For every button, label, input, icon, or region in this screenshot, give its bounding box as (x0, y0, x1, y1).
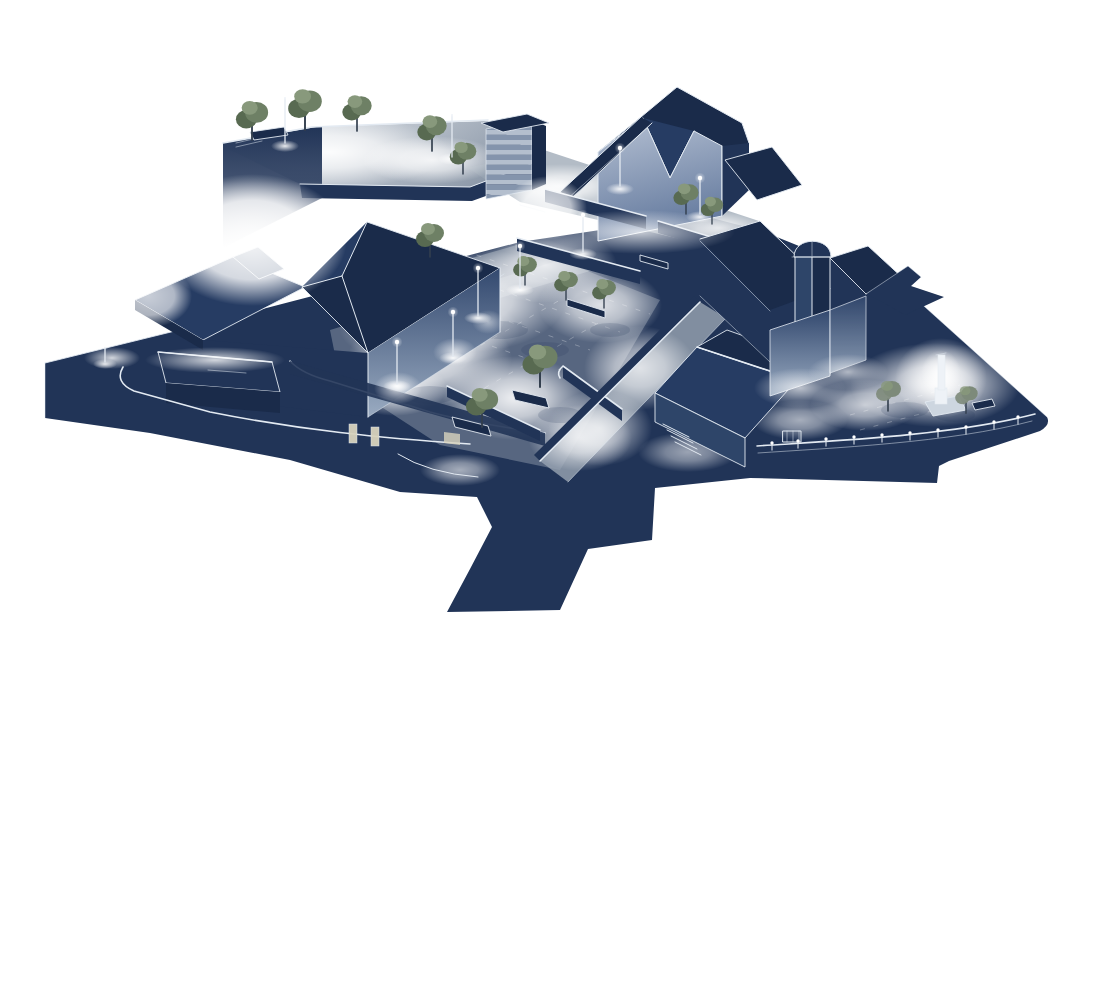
tower-dome (794, 241, 831, 257)
monument (895, 338, 987, 418)
doorway (371, 427, 379, 446)
mist (507, 176, 587, 240)
doorway (444, 432, 460, 445)
mist (104, 264, 192, 328)
light-pool (420, 454, 500, 486)
monument-plinth (935, 388, 947, 404)
doorway (349, 424, 357, 443)
monument-column (938, 355, 945, 390)
night-render-canvas (0, 0, 1100, 1000)
architectural-rendering (0, 0, 1100, 1000)
